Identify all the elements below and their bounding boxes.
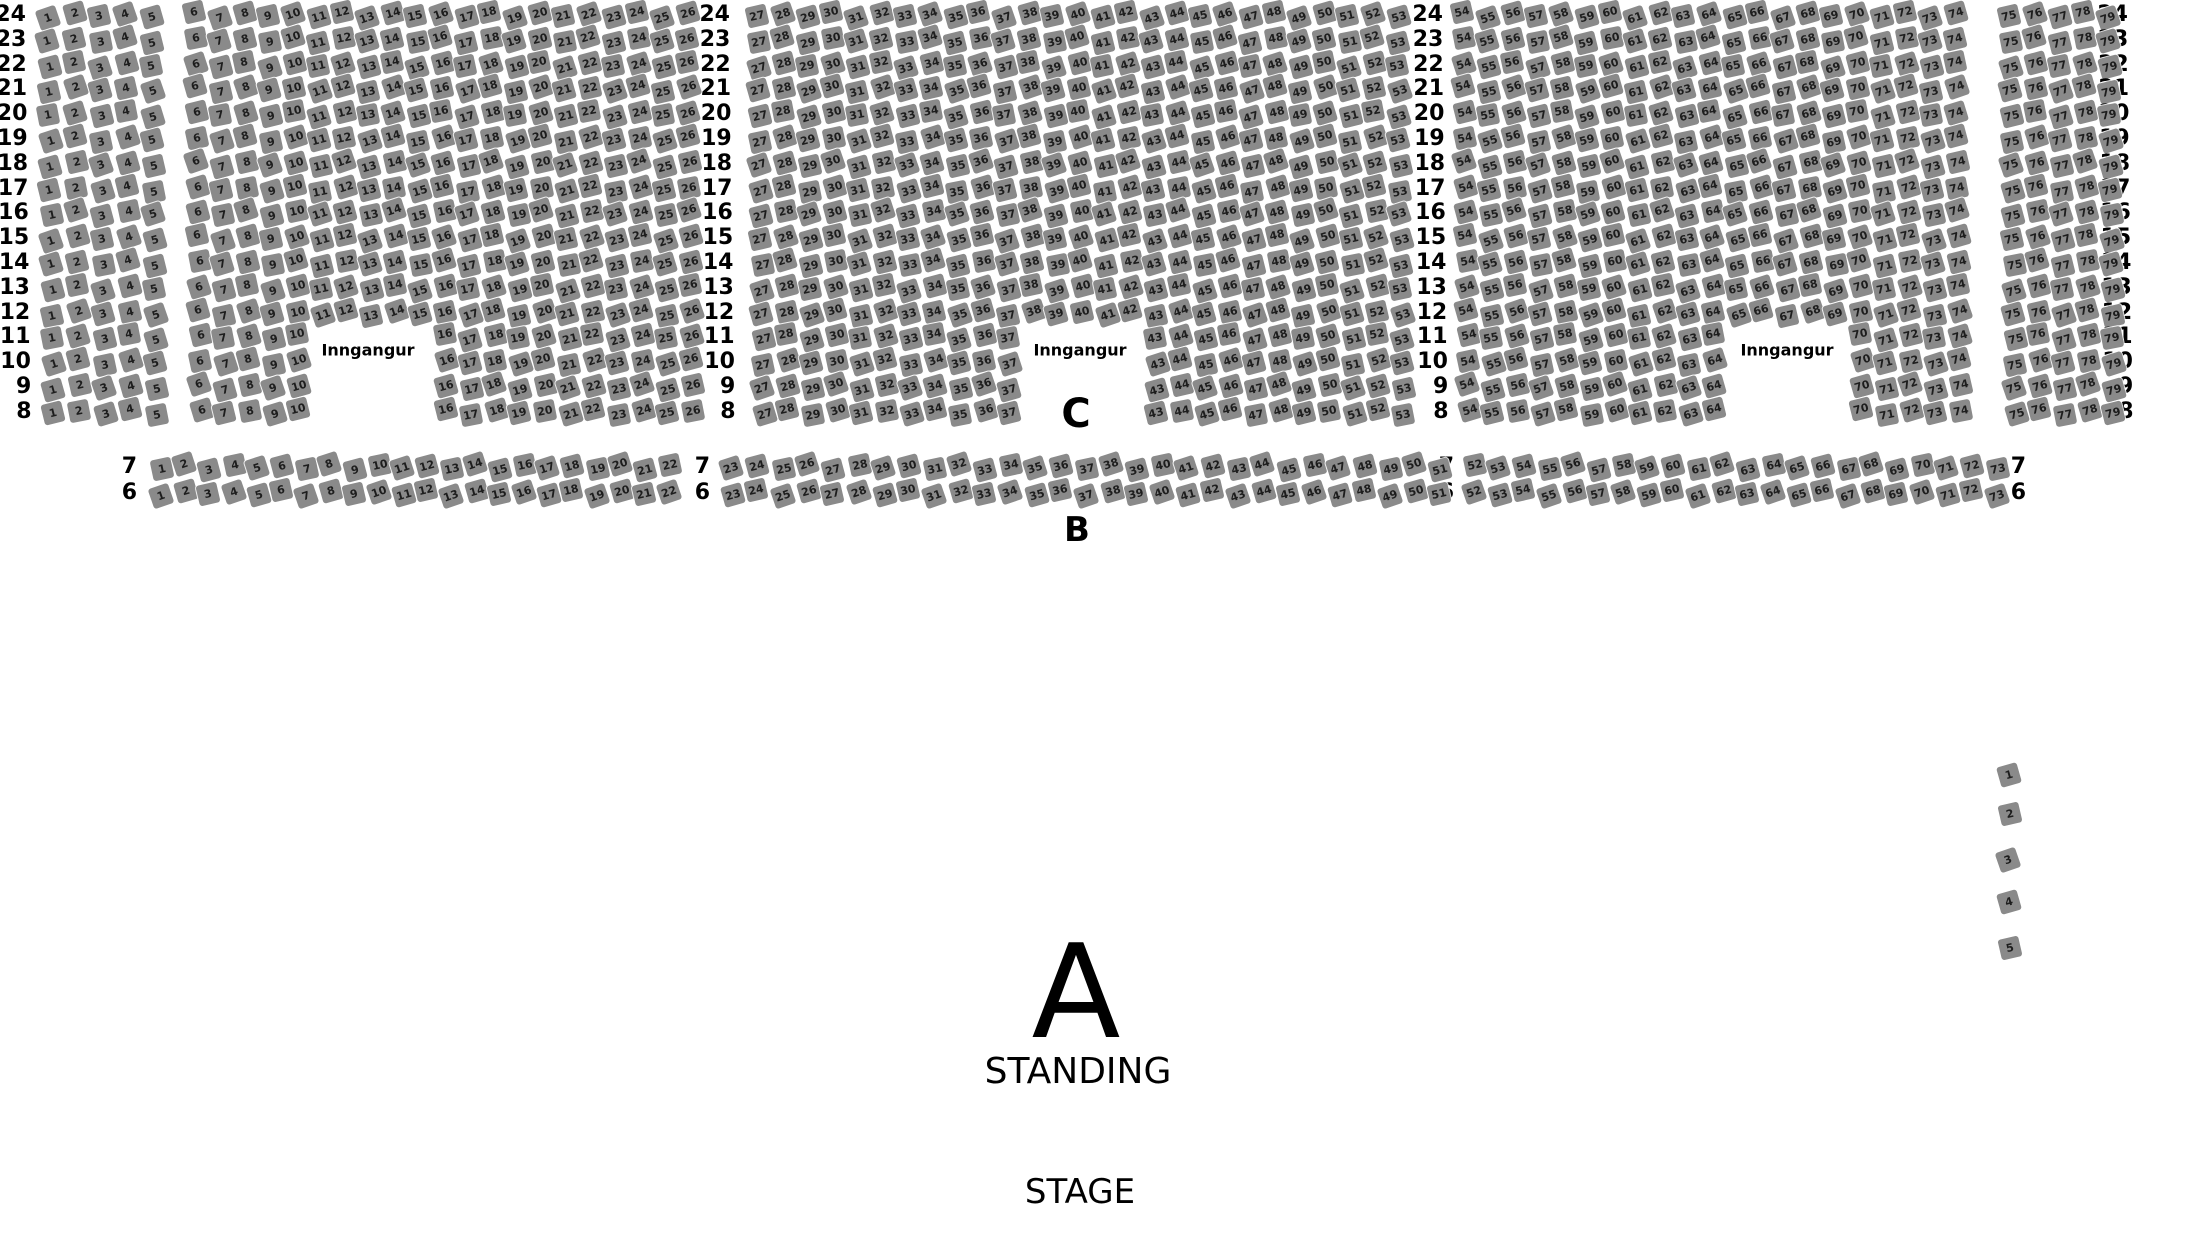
seat[interactable]: 43 <box>1141 228 1168 255</box>
seat[interactable]: 43 <box>1140 54 1166 80</box>
seat[interactable]: 77 <box>2047 30 2072 55</box>
seat[interactable]: 27 <box>751 327 776 352</box>
seat[interactable]: 23 <box>604 276 629 301</box>
seat[interactable]: 22 <box>580 396 605 421</box>
seat[interactable]: 42 <box>1117 200 1143 226</box>
seat[interactable]: 64 <box>1699 224 1726 251</box>
seat[interactable]: 18 <box>560 453 586 479</box>
seat[interactable]: 70 <box>1911 453 1936 478</box>
seat[interactable]: 19 <box>505 228 532 255</box>
seat[interactable]: 55 <box>1479 303 1504 328</box>
seat[interactable]: 25 <box>649 5 676 32</box>
seat[interactable]: 37 <box>994 228 1021 255</box>
seat[interactable]: 37 <box>993 154 1019 180</box>
seat[interactable]: 24 <box>629 371 656 398</box>
seat[interactable]: 47 <box>1240 276 1265 301</box>
seat[interactable]: 65 <box>1722 4 1748 30</box>
seat[interactable]: 17 <box>454 201 480 227</box>
seat[interactable]: 47 <box>1238 30 1263 55</box>
seat[interactable]: 57 <box>1524 54 1550 80</box>
seat[interactable]: 27 <box>748 204 774 230</box>
seat[interactable]: 9 <box>258 227 283 252</box>
seat[interactable]: 14 <box>383 249 408 274</box>
seat[interactable]: 52 <box>1362 173 1387 198</box>
seat[interactable]: 4 <box>114 173 139 198</box>
seat[interactable]: 23 <box>601 127 627 153</box>
seat[interactable]: 3 <box>92 327 117 352</box>
seat[interactable]: 9 <box>258 29 283 54</box>
seat[interactable]: 70 <box>1845 99 1870 124</box>
seat[interactable]: 53 <box>1388 253 1413 278</box>
seat[interactable]: 41 <box>1093 253 1118 278</box>
seat[interactable]: 4 <box>117 322 142 347</box>
seat[interactable]: 15 <box>405 29 430 54</box>
seat[interactable]: 12 <box>414 477 439 502</box>
seat[interactable]: 79 <box>2096 103 2121 128</box>
seat[interactable]: 57 <box>1529 253 1554 278</box>
seat[interactable]: 44 <box>1251 478 1277 504</box>
seat[interactable]: 78 <box>2074 297 2100 323</box>
seat[interactable]: 67 <box>1773 228 1800 255</box>
seat[interactable]: 5 <box>139 4 165 30</box>
seat[interactable]: 51 <box>1339 301 1365 327</box>
seat[interactable]: 62 <box>1647 49 1672 74</box>
seat[interactable]: 29 <box>797 179 822 204</box>
seat[interactable]: 4 <box>115 150 141 176</box>
seat[interactable]: 56 <box>1503 223 1529 249</box>
seat[interactable]: 17 <box>456 253 481 278</box>
seat[interactable]: 49 <box>1288 80 1313 105</box>
seat[interactable]: 70 <box>1846 124 1872 150</box>
seat[interactable]: 62 <box>1650 272 1675 297</box>
seat[interactable]: 63 <box>1674 204 1700 230</box>
seat[interactable]: 25 <box>654 303 679 328</box>
seat[interactable]: 7 <box>211 326 236 351</box>
seat[interactable]: 53 <box>1391 402 1416 427</box>
seat[interactable]: 27 <box>750 353 775 378</box>
seat[interactable]: 37 <box>995 203 1020 228</box>
seat[interactable]: 11 <box>389 455 415 481</box>
seat[interactable]: 26 <box>678 149 703 174</box>
seat[interactable]: 33 <box>895 29 920 54</box>
seat[interactable]: 66 <box>1748 200 1774 226</box>
seat[interactable]: 58 <box>1551 124 1577 150</box>
seat[interactable]: 15 <box>406 204 432 230</box>
seat[interactable]: 2 <box>1997 801 2022 826</box>
seat[interactable]: 70 <box>1846 247 1872 273</box>
seat[interactable]: 51 <box>1338 130 1363 155</box>
seat[interactable]: 16 <box>433 299 458 324</box>
seat[interactable]: 2 <box>65 323 91 349</box>
seat[interactable]: 47 <box>1242 301 1269 328</box>
seat[interactable]: 14 <box>382 149 407 174</box>
seat[interactable]: 27 <box>747 130 772 155</box>
seat[interactable]: 72 <box>1892 0 1917 25</box>
seat[interactable]: 2 <box>62 74 89 101</box>
seat[interactable]: 21 <box>554 301 580 327</box>
seat[interactable]: 6 <box>185 223 210 248</box>
seat[interactable]: 39 <box>1040 3 1065 28</box>
seat[interactable]: 32 <box>870 74 897 101</box>
seat[interactable]: 65 <box>1786 482 1812 508</box>
seat[interactable]: 57 <box>1526 130 1551 155</box>
seat[interactable]: 13 <box>357 128 383 154</box>
seat[interactable]: 70 <box>1909 479 1936 506</box>
seat[interactable]: 46 <box>1215 150 1241 176</box>
seat[interactable]: 2 <box>61 26 86 51</box>
seat[interactable]: 41 <box>1175 482 1201 508</box>
seat[interactable]: 55 <box>1474 28 1500 54</box>
seat[interactable]: 65 <box>1725 227 1751 253</box>
seat[interactable]: 78 <box>2071 73 2097 99</box>
seat[interactable]: 10 <box>283 247 309 273</box>
seat[interactable]: 3 <box>89 227 114 252</box>
seat[interactable]: 68 <box>1798 149 1823 174</box>
seat[interactable]: 75 <box>2001 278 2027 304</box>
seat[interactable]: 41 <box>1093 179 1118 204</box>
seat[interactable]: 69 <box>1818 3 1843 28</box>
seat[interactable]: 44 <box>1168 323 1194 349</box>
seat[interactable]: 2 <box>171 451 197 477</box>
seat[interactable]: 52 <box>1461 479 1488 506</box>
seat[interactable]: 57 <box>1526 227 1551 252</box>
seat[interactable]: 9 <box>259 204 285 230</box>
seat[interactable]: 2 <box>65 346 91 372</box>
seat[interactable]: 31 <box>846 228 873 255</box>
seat[interactable]: 54 <box>1450 50 1476 76</box>
seat[interactable]: 70 <box>1843 1 1870 28</box>
seat[interactable]: 6 <box>184 126 209 151</box>
seat[interactable]: 9 <box>259 177 285 203</box>
seat[interactable]: 56 <box>1500 0 1526 26</box>
seat[interactable]: 61 <box>1625 251 1651 277</box>
seat[interactable]: 44 <box>1164 123 1190 149</box>
seat[interactable]: 41 <box>1091 104 1117 130</box>
seat[interactable]: 35 <box>942 30 967 55</box>
seat[interactable]: 57 <box>1527 301 1553 327</box>
seat[interactable]: 8 <box>232 123 258 149</box>
seat[interactable]: 59 <box>1577 350 1603 376</box>
seat[interactable]: 56 <box>1499 49 1524 74</box>
seat[interactable]: 51 <box>1335 77 1361 103</box>
seat[interactable]: 14 <box>380 123 406 149</box>
seat[interactable]: 46 <box>1217 299 1242 324</box>
seat[interactable]: 24 <box>744 453 770 479</box>
seat[interactable]: 72 <box>1899 397 1925 423</box>
seat[interactable]: 58 <box>1553 322 1578 347</box>
seat[interactable]: 1 <box>38 128 64 154</box>
seat[interactable]: 70 <box>1845 50 1871 76</box>
seat[interactable]: 5 <box>142 153 167 178</box>
seat[interactable]: 37 <box>993 177 1018 202</box>
seat[interactable]: 50 <box>1403 478 1429 504</box>
seat[interactable]: 21 <box>551 54 577 80</box>
seat[interactable]: 72 <box>1896 173 1922 199</box>
seat[interactable]: 72 <box>1899 323 1924 348</box>
seat[interactable]: 73 <box>1919 177 1944 202</box>
seat[interactable]: 41 <box>1093 276 1118 301</box>
seat[interactable]: 34 <box>920 247 946 273</box>
seat[interactable]: 44 <box>1167 223 1193 249</box>
seat[interactable]: 48 <box>1265 297 1291 323</box>
seat[interactable]: 31 <box>843 28 869 54</box>
seat[interactable]: 63 <box>1675 177 1701 203</box>
seat[interactable]: 48 <box>1265 371 1292 398</box>
seat[interactable]: 14 <box>380 0 406 26</box>
seat[interactable]: 3 <box>87 151 114 178</box>
seat[interactable]: 71 <box>1868 53 1893 78</box>
seat[interactable]: 18 <box>481 371 508 398</box>
seat[interactable]: 47 <box>1241 253 1266 278</box>
seat[interactable]: 58 <box>1554 373 1580 399</box>
seat[interactable]: 9 <box>256 54 282 80</box>
seat[interactable]: 45 <box>1275 481 1300 506</box>
seat[interactable]: 29 <box>796 78 823 105</box>
seat[interactable]: 6 <box>187 349 212 374</box>
seat[interactable]: 36 <box>970 371 997 398</box>
seat[interactable]: 27 <box>748 227 773 252</box>
seat[interactable]: 18 <box>480 200 506 226</box>
seat[interactable]: 4 <box>114 76 139 101</box>
seat[interactable]: 25 <box>655 351 681 377</box>
seat[interactable]: 63 <box>1674 227 1699 252</box>
seat[interactable]: 21 <box>556 253 581 278</box>
seat[interactable]: 11 <box>306 127 332 153</box>
seat[interactable]: 44 <box>1168 297 1195 324</box>
seat[interactable]: 53 <box>1386 78 1413 105</box>
seat[interactable]: 62 <box>1648 100 1674 126</box>
seat[interactable]: 4 <box>1996 889 2022 915</box>
seat[interactable]: 73 <box>1922 303 1947 328</box>
seat[interactable]: 47 <box>1238 127 1264 153</box>
seat[interactable]: 21 <box>553 29 578 54</box>
seat[interactable]: 13 <box>354 5 381 32</box>
seat[interactable]: 49 <box>1291 203 1316 228</box>
seat[interactable]: 55 <box>1477 154 1503 180</box>
seat[interactable]: 56 <box>1506 372 1531 397</box>
seat[interactable]: 61 <box>1624 80 1649 105</box>
seat[interactable]: 71 <box>1870 201 1896 227</box>
seat[interactable]: 24 <box>628 297 654 323</box>
seat[interactable]: 50 <box>1314 175 1339 200</box>
seat[interactable]: 4 <box>117 396 142 421</box>
seat[interactable]: 17 <box>457 350 483 376</box>
seat[interactable]: 56 <box>1503 249 1528 274</box>
seat[interactable]: 36 <box>973 397 999 423</box>
seat[interactable]: 77 <box>2050 153 2075 178</box>
seat[interactable]: 28 <box>774 299 799 324</box>
seat[interactable]: 56 <box>1501 74 1528 101</box>
seat[interactable]: 9 <box>261 353 286 378</box>
seat[interactable]: 62 <box>1651 323 1677 349</box>
seat[interactable]: 46 <box>1212 1 1239 28</box>
seat[interactable]: 52 <box>1359 24 1385 50</box>
seat[interactable]: 37 <box>991 5 1018 32</box>
seat[interactable]: 43 <box>1141 154 1167 180</box>
seat[interactable]: 44 <box>1165 197 1191 223</box>
seat[interactable]: 8 <box>236 297 263 324</box>
seat[interactable]: 19 <box>506 326 531 351</box>
seat[interactable]: 3 <box>90 375 117 402</box>
seat[interactable]: 18 <box>480 223 505 248</box>
seat[interactable]: 75 <box>2000 204 2026 230</box>
seat[interactable]: 63 <box>1672 54 1698 80</box>
seat[interactable]: 73 <box>1920 251 1946 277</box>
seat[interactable]: 69 <box>1822 227 1847 252</box>
seat[interactable]: 19 <box>501 5 528 32</box>
seat[interactable]: 62 <box>1648 123 1674 149</box>
seat[interactable]: 27 <box>745 77 771 103</box>
seat[interactable]: 20 <box>528 100 554 126</box>
seat[interactable]: 71 <box>1872 227 1898 253</box>
seat[interactable]: 26 <box>675 0 701 26</box>
seat[interactable]: 60 <box>1598 147 1625 174</box>
seat[interactable]: 70 <box>1849 273 1875 299</box>
seat[interactable]: 12 <box>332 223 357 248</box>
seat[interactable]: 74 <box>1946 323 1972 349</box>
seat[interactable]: 66 <box>1747 126 1772 151</box>
seat[interactable]: 37 <box>1075 457 1100 482</box>
seat[interactable]: 16 <box>431 224 458 251</box>
seat[interactable]: 26 <box>678 323 704 349</box>
seat[interactable]: 43 <box>1144 351 1170 377</box>
seat[interactable]: 77 <box>2049 179 2074 204</box>
seat[interactable]: 31 <box>849 377 875 403</box>
seat[interactable]: 74 <box>1944 197 1970 223</box>
seat[interactable]: 37 <box>992 80 1017 105</box>
seat[interactable]: 24 <box>744 477 769 502</box>
seat[interactable]: 27 <box>750 253 775 278</box>
seat[interactable]: 75 <box>2003 401 2029 427</box>
seat[interactable]: 5 <box>144 402 169 427</box>
seat[interactable]: 54 <box>1511 453 1537 479</box>
seat[interactable]: 70 <box>1845 173 1870 198</box>
seat[interactable]: 39 <box>1043 227 1068 252</box>
seat[interactable]: 58 <box>1548 24 1574 50</box>
seat[interactable]: 20 <box>533 372 558 397</box>
seat[interactable]: 1 <box>40 400 65 425</box>
seat[interactable]: 59 <box>1578 301 1605 328</box>
seat[interactable]: 57 <box>1529 353 1554 378</box>
seat[interactable]: 5 <box>138 53 163 78</box>
seat[interactable]: 44 <box>1165 74 1192 101</box>
seat[interactable]: 20 <box>527 0 553 26</box>
seat[interactable]: 39 <box>1042 130 1067 155</box>
seat[interactable]: 14 <box>383 223 409 249</box>
seat[interactable]: 75 <box>1996 3 2021 28</box>
seat[interactable]: 24 <box>630 349 655 374</box>
seat[interactable]: 31 <box>845 80 870 105</box>
seat[interactable]: 75 <box>2001 375 2028 402</box>
seat[interactable]: 54 <box>1449 0 1474 25</box>
seat[interactable]: 53 <box>1389 327 1415 353</box>
seat[interactable]: 30 <box>822 274 848 300</box>
seat[interactable]: 7 <box>208 177 233 202</box>
seat[interactable]: 7 <box>208 103 233 128</box>
seat[interactable]: 13 <box>359 203 384 228</box>
seat[interactable]: 22 <box>575 24 601 50</box>
seat[interactable]: 34 <box>923 347 949 373</box>
seat[interactable]: 28 <box>769 24 795 50</box>
seat[interactable]: 53 <box>1388 153 1413 178</box>
seat[interactable]: 77 <box>2050 350 2076 376</box>
seat[interactable]: 19 <box>507 400 532 425</box>
seat[interactable]: 64 <box>1698 50 1724 76</box>
seat[interactable]: 36 <box>967 147 994 174</box>
seat[interactable]: 48 <box>1351 477 1376 502</box>
seat[interactable]: 51 <box>1338 204 1364 230</box>
seat[interactable]: 49 <box>1289 251 1315 277</box>
seat[interactable]: 68 <box>1795 49 1820 74</box>
seat[interactable]: 59 <box>1577 227 1603 253</box>
seat[interactable]: 68 <box>1796 197 1822 223</box>
seat[interactable]: 60 <box>1601 173 1627 199</box>
seat[interactable]: 52 <box>1365 273 1391 299</box>
seat[interactable]: 7 <box>206 28 232 54</box>
seat[interactable]: 35 <box>943 127 969 153</box>
seat[interactable]: 71 <box>1869 30 1894 55</box>
seat[interactable]: 31 <box>845 177 870 202</box>
seat[interactable]: 33 <box>893 151 920 178</box>
seat[interactable]: 42 <box>1118 274 1144 300</box>
seat[interactable]: 48 <box>1352 453 1378 479</box>
seat[interactable]: 20 <box>530 272 555 297</box>
seat[interactable]: 63 <box>1674 103 1699 128</box>
seat[interactable]: 16 <box>432 199 457 224</box>
seat[interactable]: 57 <box>1586 457 1612 483</box>
seat[interactable]: 53 <box>1388 276 1413 301</box>
seat[interactable]: 38 <box>1019 272 1044 297</box>
seat[interactable]: 46 <box>1217 273 1243 299</box>
seat[interactable]: 49 <box>1286 5 1313 32</box>
seat[interactable]: 49 <box>1285 28 1311 54</box>
seat[interactable]: 59 <box>1574 127 1600 153</box>
seat[interactable]: 47 <box>1238 4 1264 30</box>
seat[interactable]: 61 <box>1621 28 1647 54</box>
seat[interactable]: 26 <box>679 297 706 324</box>
seat[interactable]: 51 <box>1336 54 1362 80</box>
seat[interactable]: 67 <box>1772 54 1798 80</box>
seat[interactable]: 63 <box>1677 353 1702 378</box>
seat[interactable]: 6 <box>183 147 210 174</box>
seat[interactable]: 62 <box>1651 346 1677 372</box>
seat[interactable]: 44 <box>1167 272 1192 297</box>
seat[interactable]: 23 <box>602 78 629 105</box>
seat[interactable]: 19 <box>504 177 529 202</box>
seat[interactable]: 25 <box>652 251 678 277</box>
seat[interactable]: 38 <box>1019 249 1044 274</box>
seat[interactable]: 11 <box>305 53 330 78</box>
seat[interactable]: 10 <box>283 224 310 251</box>
seat[interactable]: 44 <box>1249 451 1275 477</box>
seat[interactable]: 72 <box>1895 126 1920 151</box>
seat[interactable]: 76 <box>2026 322 2051 347</box>
seat[interactable]: 23 <box>601 104 627 130</box>
seat[interactable]: 8 <box>232 100 258 126</box>
seat[interactable]: 35 <box>945 153 970 178</box>
seat[interactable]: 19 <box>503 103 528 128</box>
seat[interactable]: 60 <box>1604 397 1630 423</box>
seat[interactable]: 49 <box>1288 154 1314 180</box>
seat[interactable]: 61 <box>1623 103 1648 128</box>
seat[interactable]: 60 <box>1660 477 1685 502</box>
seat[interactable]: 5 <box>139 30 164 55</box>
seat[interactable]: 67 <box>1834 483 1861 510</box>
seat[interactable]: 18 <box>480 297 506 323</box>
seat[interactable]: 73 <box>1985 457 2010 482</box>
seat[interactable]: 43 <box>1138 5 1165 32</box>
seat[interactable]: 32 <box>872 149 897 174</box>
